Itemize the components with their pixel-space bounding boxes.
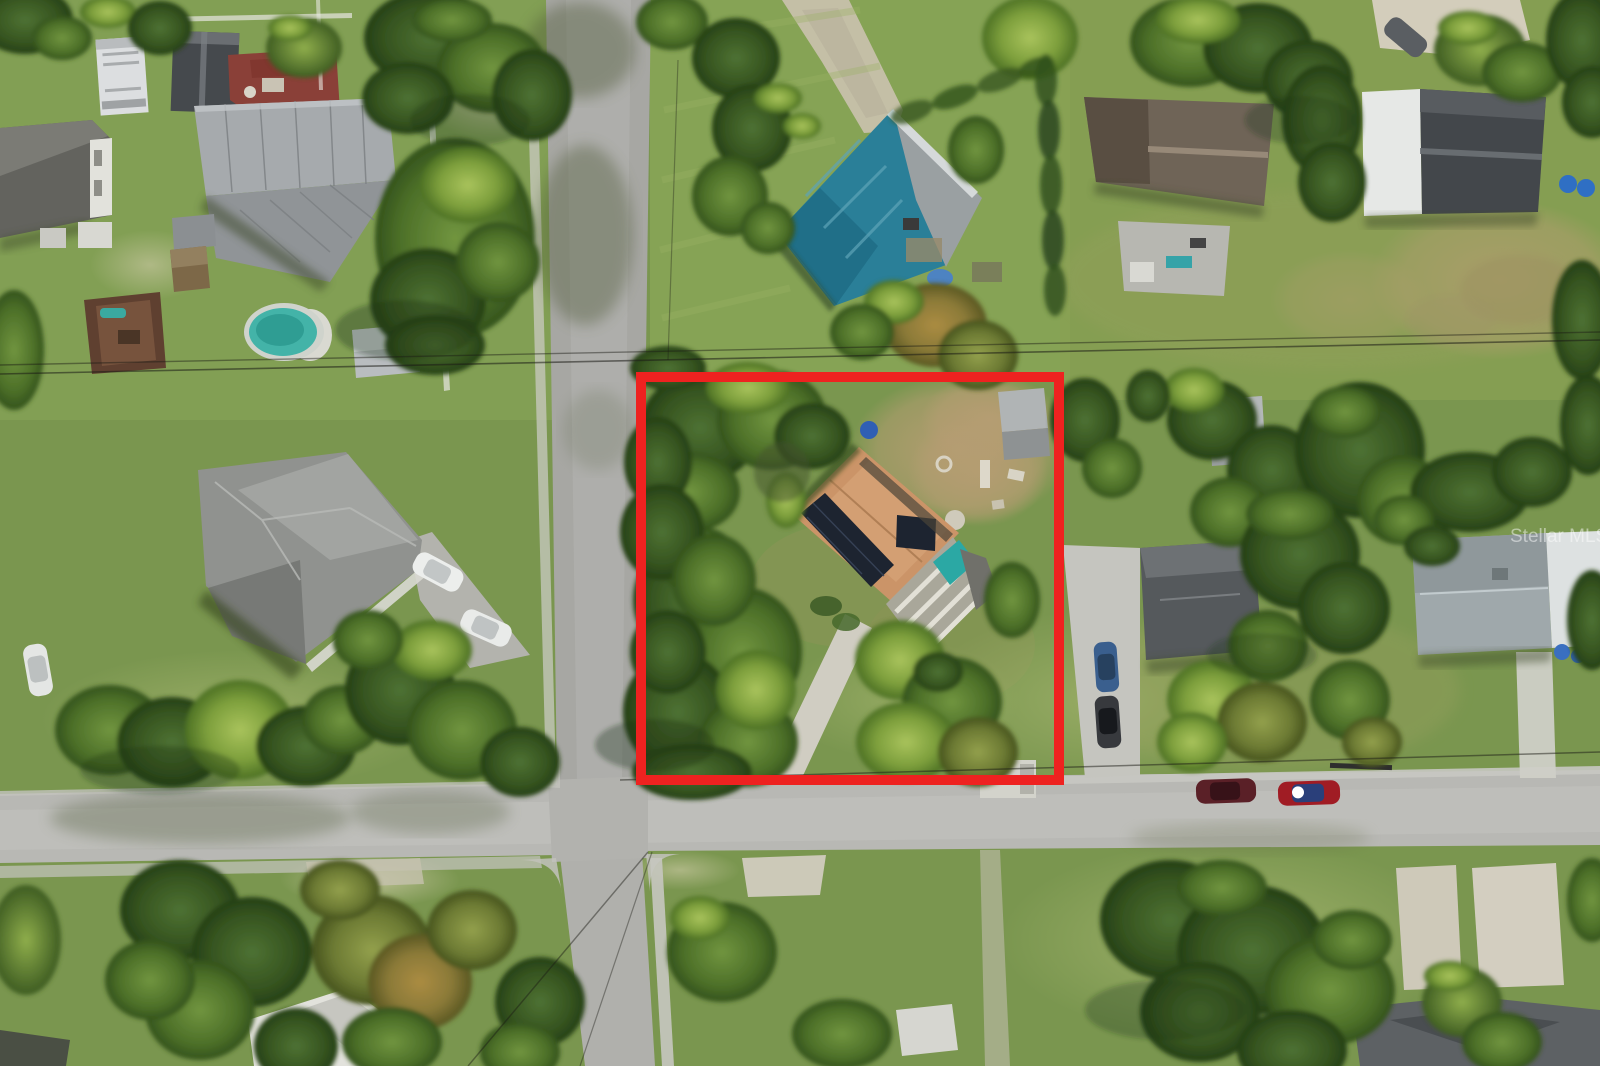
svg-text:Stellar MLS: Stellar MLS <box>1510 526 1600 547</box>
